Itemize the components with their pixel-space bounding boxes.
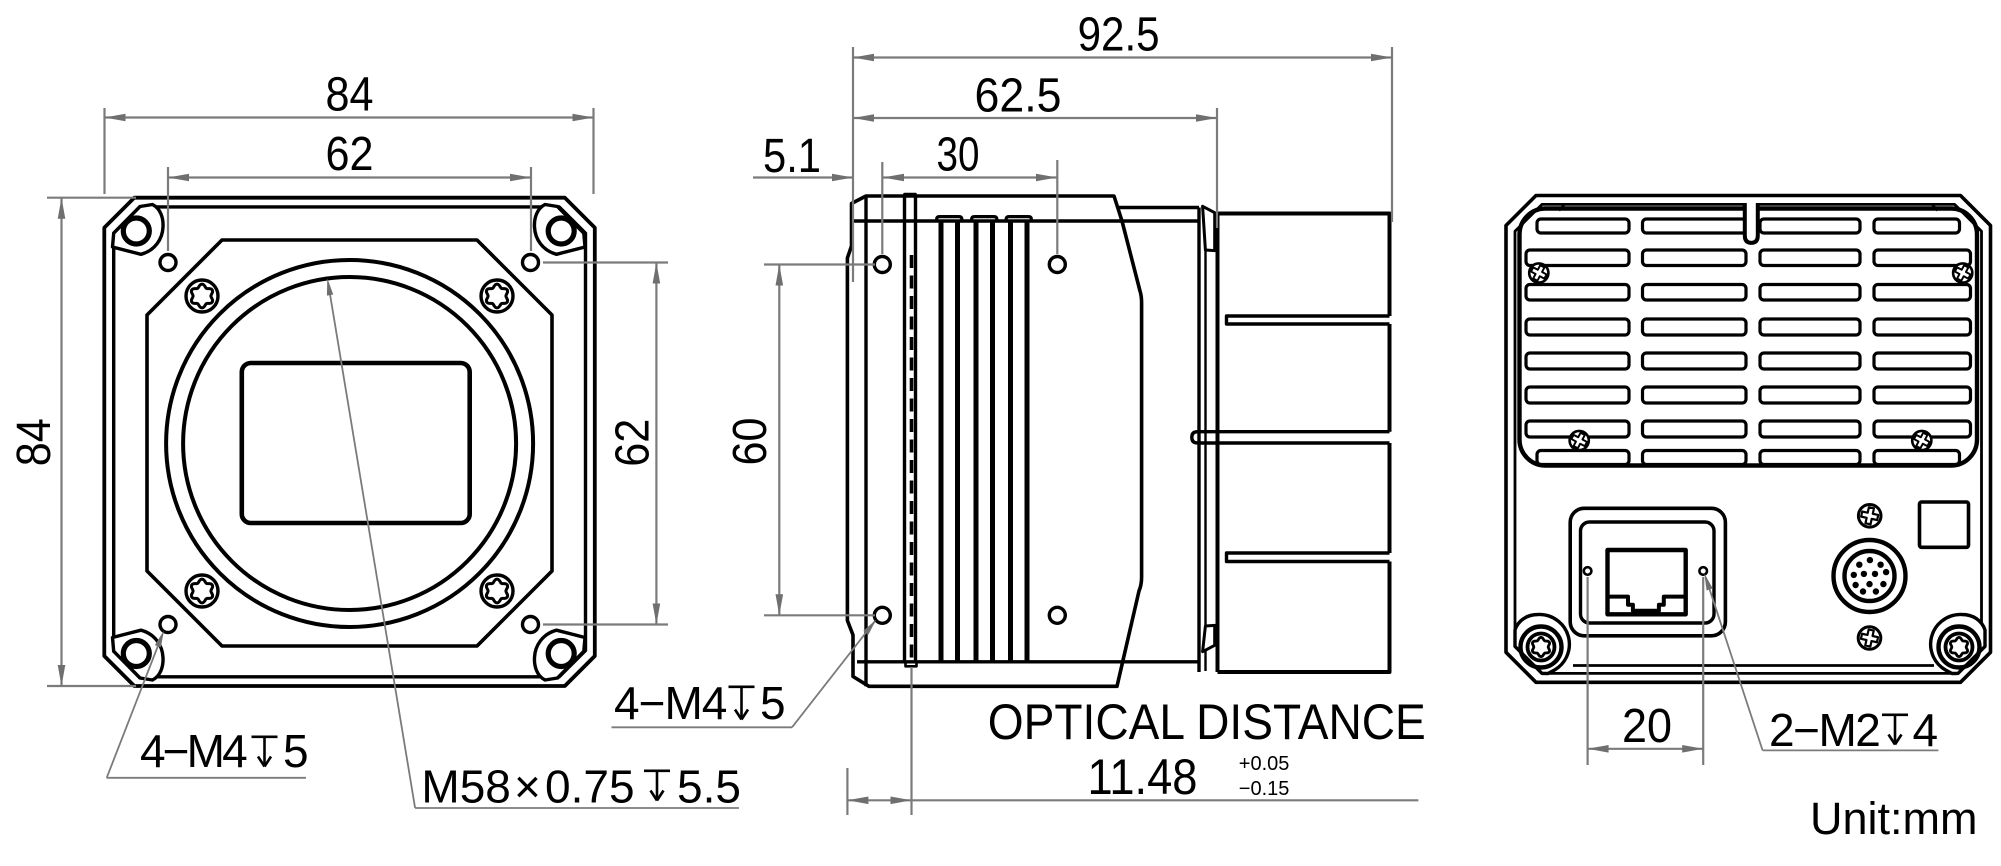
svg-text:62: 62 xyxy=(607,419,660,467)
svg-text:4−M4: 4−M4 xyxy=(140,725,247,777)
svg-text:84: 84 xyxy=(8,418,61,466)
svg-text:Unit:mm: Unit:mm xyxy=(1810,793,1978,844)
svg-text:84: 84 xyxy=(326,69,374,122)
svg-text:62.5: 62.5 xyxy=(975,70,1062,123)
svg-text:−0.15: −0.15 xyxy=(1239,778,1290,800)
svg-text:M58: M58 xyxy=(421,761,510,813)
svg-text:60: 60 xyxy=(724,418,777,466)
svg-text:5.5: 5.5 xyxy=(677,761,741,813)
svg-text:0.75: 0.75 xyxy=(545,761,635,813)
svg-text:4−M4: 4−M4 xyxy=(614,677,727,729)
svg-text:5.1: 5.1 xyxy=(763,130,821,183)
svg-text:OPTICAL DISTANCE: OPTICAL DISTANCE xyxy=(988,694,1426,750)
svg-text:11.48: 11.48 xyxy=(1088,749,1198,805)
svg-text:20: 20 xyxy=(1622,700,1672,753)
svg-text:30: 30 xyxy=(937,129,980,182)
svg-text:92.5: 92.5 xyxy=(1078,9,1160,62)
svg-text:×: × xyxy=(514,761,541,813)
svg-text:5: 5 xyxy=(283,725,309,777)
svg-text:4: 4 xyxy=(1913,704,1939,756)
svg-text:2−M2: 2−M2 xyxy=(1769,704,1879,756)
svg-text:5: 5 xyxy=(760,677,786,729)
svg-text:62: 62 xyxy=(326,128,374,181)
svg-text:+0.05: +0.05 xyxy=(1239,753,1290,775)
